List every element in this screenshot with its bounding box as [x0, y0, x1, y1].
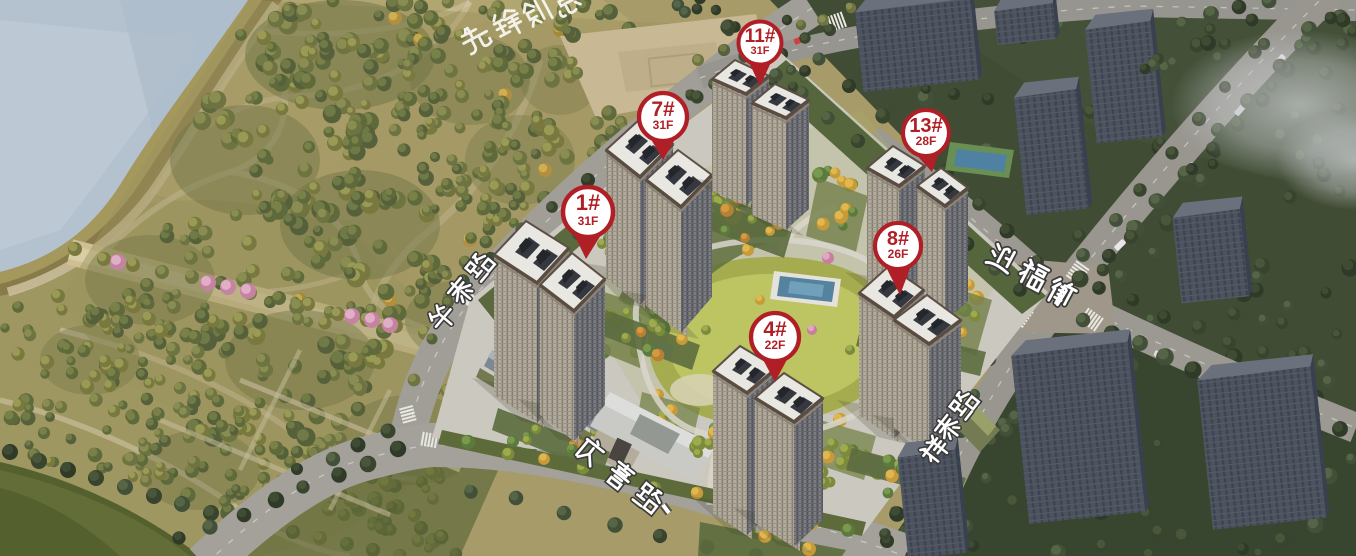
svg-text:31F: 31F [751, 45, 770, 57]
svg-text:31F: 31F [578, 214, 599, 228]
svg-text:22F: 22F [765, 338, 786, 352]
svg-text:1#: 1# [576, 190, 600, 215]
svg-text:28F: 28F [916, 134, 937, 148]
svg-text:26F: 26F [888, 247, 909, 261]
svg-text:31F: 31F [653, 118, 674, 132]
svg-text:11#: 11# [745, 26, 776, 47]
